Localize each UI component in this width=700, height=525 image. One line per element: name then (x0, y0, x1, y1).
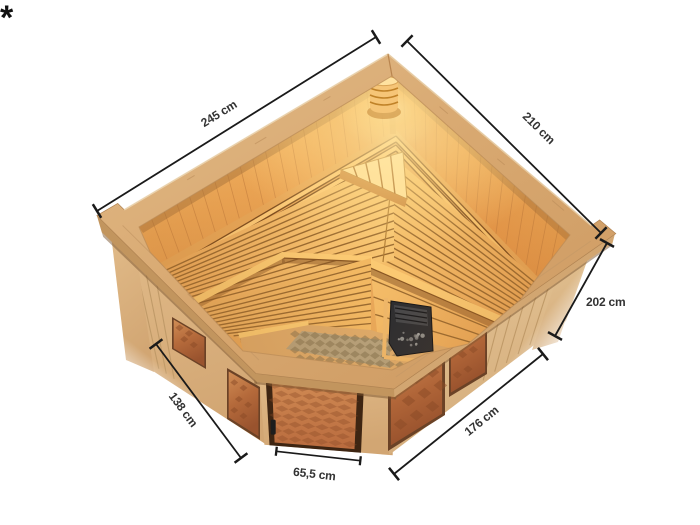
svg-text:202 cm: 202 cm (586, 295, 626, 309)
svg-text:*: * (0, 0, 14, 37)
